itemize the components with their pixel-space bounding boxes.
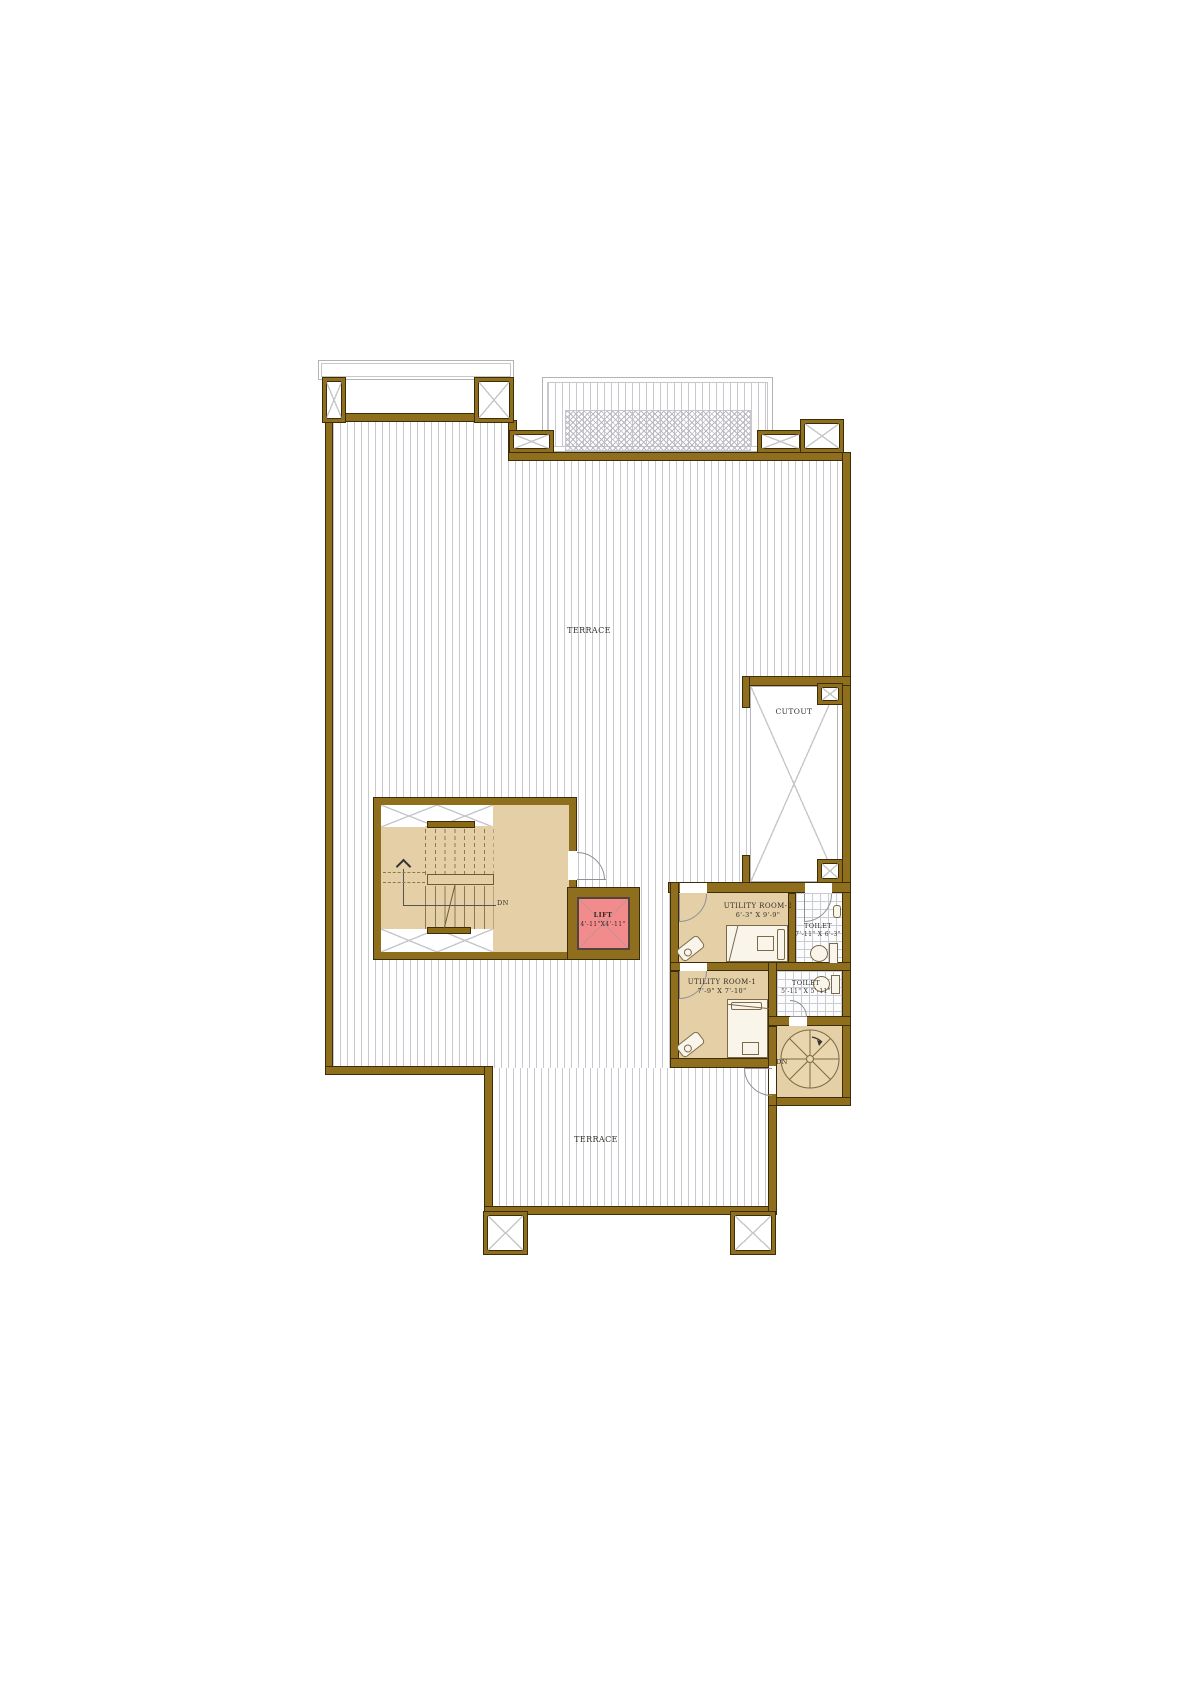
wall-cutout-left-stub-top (742, 676, 750, 708)
lift-label: LIFT (563, 912, 643, 919)
utility-room-1-dims-label: 7'-9" X 7'-10" (662, 988, 782, 995)
pergola-planter-band (565, 410, 751, 451)
terrace-bottom-label: TERRACE (536, 1135, 656, 1144)
wall-step-bottom-left (325, 1066, 492, 1075)
door-leaf (744, 1068, 772, 1069)
column (731, 1212, 775, 1254)
stair-tread-bar-top (427, 821, 475, 828)
wc-icon (829, 943, 838, 964)
stair-tread-bar-bottom (427, 927, 471, 934)
cutout-label: CUTOUT (754, 708, 834, 717)
parapet-railing (318, 360, 514, 380)
door-opening (805, 883, 832, 893)
stair-flight-up (425, 826, 494, 876)
wall-left (325, 378, 333, 1075)
door-leaf (790, 1016, 807, 1017)
spiral-down-label: DN (776, 1059, 792, 1066)
wall-spiral-bottom (768, 1097, 851, 1106)
stair-flight-down (425, 886, 494, 929)
utility-room-2-dims-label: 6'-3" X 9'-9" (698, 912, 818, 919)
column (484, 1212, 527, 1254)
terrace-top-label: TERRACE (529, 626, 649, 635)
column (323, 378, 345, 422)
door-opening (568, 851, 578, 880)
wall-right (842, 452, 851, 1105)
wall-utility2-left (670, 882, 679, 971)
pergola (542, 377, 773, 452)
stair-landing (427, 874, 494, 885)
wall-lower-terrace-right (768, 1097, 777, 1215)
wall-cutout-left-stub-bottom (742, 855, 750, 885)
floor-plan: TERRACE TERRACE CUTOUT LIFT 4'-11"X4'-11… (0, 0, 1200, 1697)
wall-top-main (508, 452, 851, 461)
stair-dashed-line (383, 872, 425, 873)
column (758, 431, 803, 452)
bed-icon (727, 999, 768, 1058)
column (818, 684, 842, 704)
column (475, 378, 513, 422)
sink-icon (833, 905, 841, 918)
utility-room-2-label: UTILITY ROOM-2 (698, 902, 818, 910)
toilet-1-label: TOILET (788, 923, 848, 930)
column (818, 860, 842, 882)
column (510, 431, 553, 452)
door-opening (789, 1017, 807, 1026)
utility-room-1-label: UTILITY ROOM-1 (662, 978, 782, 986)
parapet-railing-inner-line (321, 363, 511, 377)
wall-utility1-bottom (670, 1058, 777, 1068)
bed-icon (726, 925, 788, 962)
door-opening (680, 963, 707, 971)
stair-guide-vertical (403, 869, 404, 906)
wall-toilet2-bottom (768, 1016, 851, 1026)
terrace-floor-upper-left (333, 422, 508, 1068)
toilet-2-label: TOILET (776, 980, 836, 987)
stair-dashed-line (383, 882, 425, 883)
lift-dims-label: 4'-11"X4'-11" (563, 922, 643, 929)
door-opening (680, 883, 707, 893)
stair-down-label: DN (497, 900, 517, 907)
wc-bowl-icon (810, 945, 828, 962)
door-leaf (577, 879, 606, 880)
wall-lower-terrace-left (484, 1066, 493, 1215)
toilet-2-dims-label: 5'-11" X 5'-11" (776, 989, 836, 996)
stair-guide-horizontal (403, 905, 496, 906)
toilet-1-dims-label: 7'-11" X 6'-3" (788, 932, 848, 939)
door-leaf (679, 894, 680, 922)
column (801, 420, 843, 452)
